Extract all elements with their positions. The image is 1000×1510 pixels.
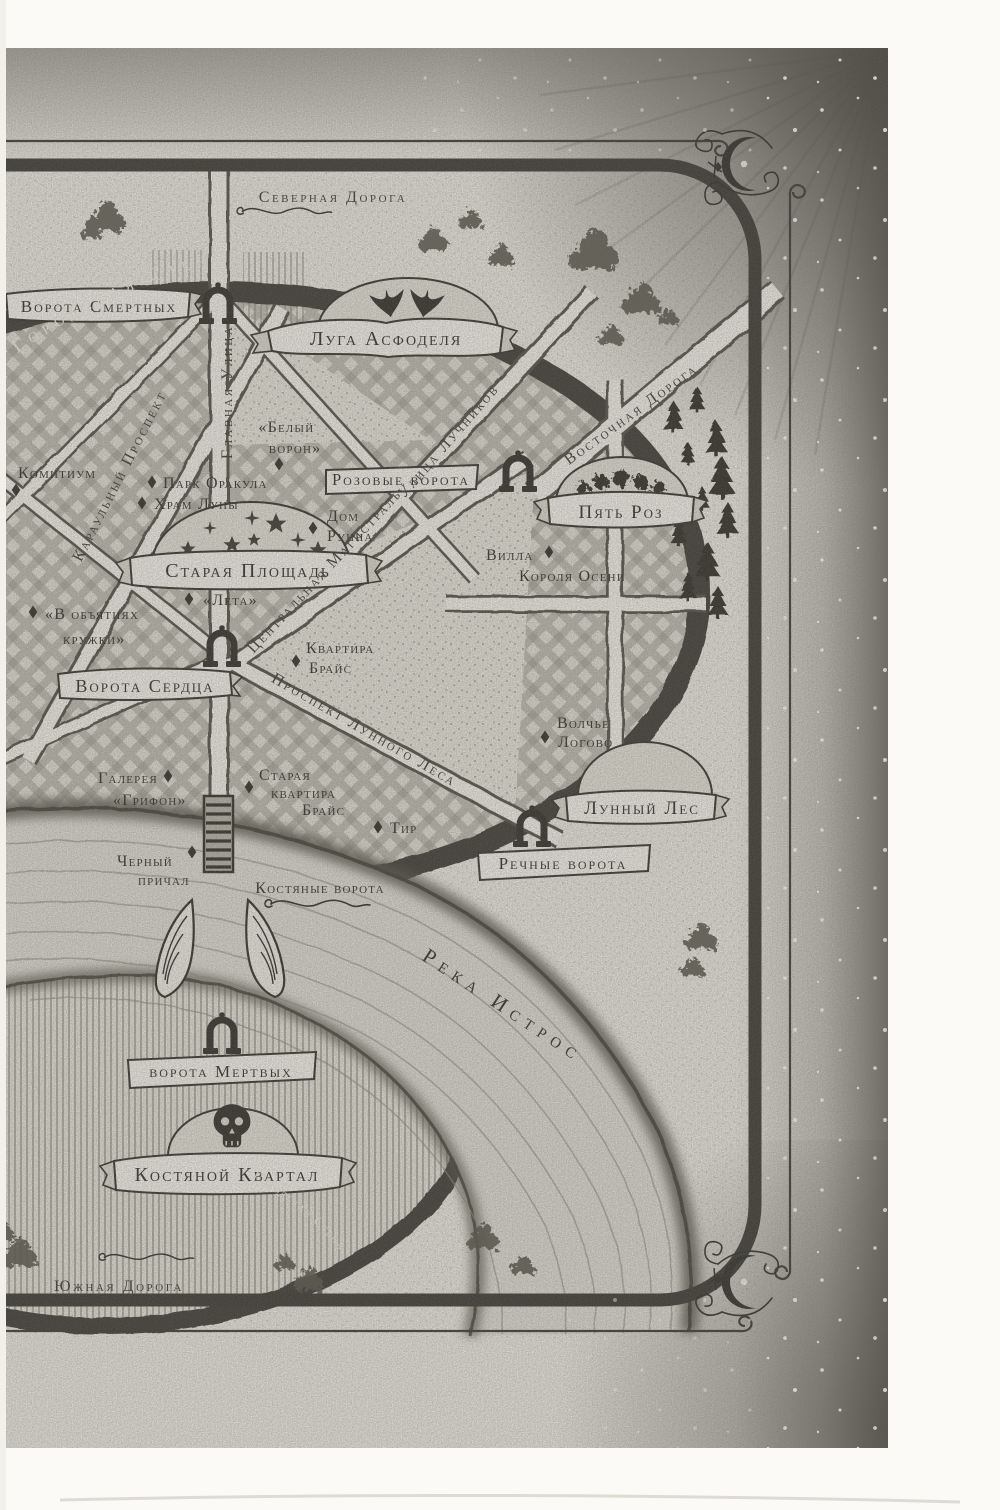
scanned-map-page: Ворота Смертных Луга Асфоделя Розовые во…: [0, 0, 1000, 1510]
page-margin-top: [0, 0, 1000, 48]
page-margin-right: [888, 0, 1000, 1510]
page-margin-left: [0, 0, 6, 1510]
map-canvas: Ворота Смертных Луга Асфоделя Розовые во…: [0, 0, 1000, 1510]
paper-grain: [0, 45, 895, 1455]
